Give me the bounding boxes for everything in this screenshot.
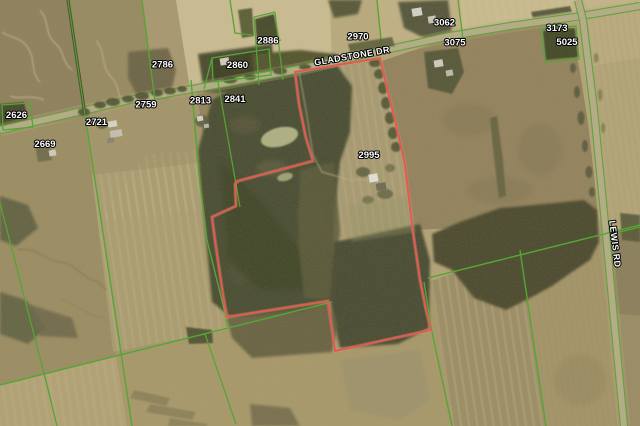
svg-text:2786: 2786 (152, 60, 173, 71)
svg-text:2860: 2860 (227, 60, 248, 71)
svg-text:2721: 2721 (86, 117, 108, 128)
svg-text:5025: 5025 (556, 37, 578, 48)
svg-text:2970: 2970 (347, 32, 368, 43)
svg-text:2813: 2813 (190, 96, 211, 107)
svg-text:2626: 2626 (6, 110, 27, 121)
svg-text:3075: 3075 (444, 38, 466, 49)
svg-text:2841: 2841 (224, 94, 246, 105)
svg-text:3062: 3062 (434, 18, 455, 29)
svg-text:2669: 2669 (34, 139, 55, 150)
svg-text:2995: 2995 (358, 150, 380, 161)
svg-text:2759: 2759 (135, 100, 156, 111)
svg-text:2886: 2886 (257, 36, 278, 47)
svg-text:3173: 3173 (546, 23, 567, 34)
